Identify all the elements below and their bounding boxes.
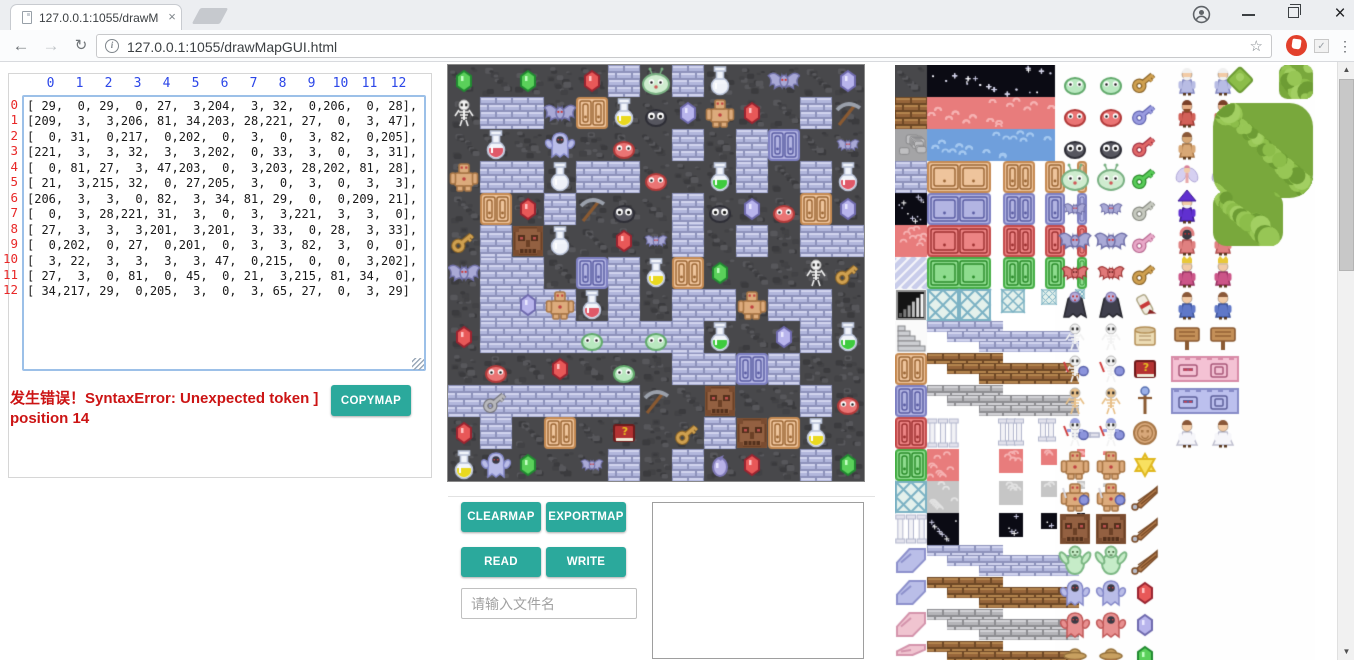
matrix-row-headers: 0123456789101112 — [2, 97, 18, 298]
tab-title: 127.0.0.1:1055/drawMa — [39, 11, 159, 25]
page-scrollbar[interactable]: ▲ ▼ — [1337, 62, 1354, 660]
clearmap-button[interactable]: CLEARMAP — [461, 502, 541, 532]
map-matrix-textarea[interactable] — [22, 95, 426, 371]
address-bar[interactable]: i 127.0.0.1:1055/drawMapGUI.html ☆ — [96, 34, 1272, 58]
profile-icon[interactable] — [1192, 5, 1211, 24]
url-text: 127.0.0.1:1055/drawMapGUI.html — [127, 39, 337, 55]
browser-tab[interactable]: 127.0.0.1:1055/drawMa × — [10, 4, 182, 30]
new-tab-button[interactable] — [192, 8, 229, 24]
page-favicon-icon — [22, 11, 32, 24]
forward-icon[interactable]: → — [38, 33, 64, 59]
page-info-icon[interactable]: i — [105, 39, 119, 53]
exportmap-button[interactable]: EXPORTMAP — [546, 502, 626, 532]
back-icon[interactable]: ← — [8, 33, 34, 59]
error-message: 发生错误！SyntaxError: Unexpected token ] pos… — [10, 389, 355, 429]
error-line1: 发生错误！SyntaxError: Unexpected token ] — [10, 389, 355, 409]
window-close-button[interactable]: × — [1329, 2, 1351, 26]
extension-adblock-icon[interactable] — [1286, 35, 1307, 56]
browser-menu-icon[interactable]: ⋮ — [1338, 34, 1352, 58]
tileset-canvas[interactable] — [895, 65, 1315, 660]
window-restore-button[interactable] — [1288, 7, 1299, 18]
error-line2: position 14 — [10, 409, 355, 429]
browser-toolbar: ← → ↻ i 127.0.0.1:1055/drawMapGUI.html ☆… — [0, 30, 1354, 62]
window-minimize-button[interactable] — [1242, 14, 1255, 16]
write-button[interactable]: WRITE — [546, 547, 626, 577]
matrix-column-headers: 0123456789101112 — [36, 76, 413, 92]
page-content: 0123456789101112 0123456789101112 发生错误！S… — [0, 62, 1354, 660]
read-button[interactable]: READ — [461, 547, 541, 577]
scrollbar-up-icon[interactable]: ▲ — [1338, 62, 1354, 78]
tab-close-icon[interactable]: × — [164, 9, 180, 25]
reload-icon[interactable]: ↻ — [68, 33, 94, 59]
filename-input[interactable] — [461, 588, 637, 619]
scrollbar-down-icon[interactable]: ▼ — [1338, 644, 1354, 660]
browser-titlebar: 127.0.0.1:1055/drawMa × × — [0, 0, 1354, 30]
extension-check-icon[interactable]: ✓ — [1314, 39, 1329, 53]
copymap-button[interactable]: COPYMAP — [331, 385, 411, 416]
scrollbar-thumb[interactable] — [1339, 79, 1354, 271]
output-box — [652, 502, 864, 659]
bookmark-star-icon[interactable]: ☆ — [1250, 37, 1263, 55]
map-canvas[interactable] — [448, 65, 864, 481]
divider-line — [448, 496, 875, 497]
